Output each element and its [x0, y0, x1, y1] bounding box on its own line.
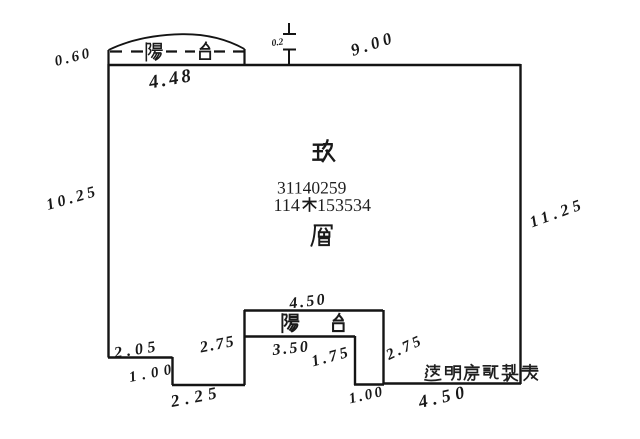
svg-text:114: 114 [274, 195, 300, 215]
svg-text:0.2: 0.2 [271, 37, 284, 49]
svg-text:153534: 153534 [317, 195, 371, 215]
